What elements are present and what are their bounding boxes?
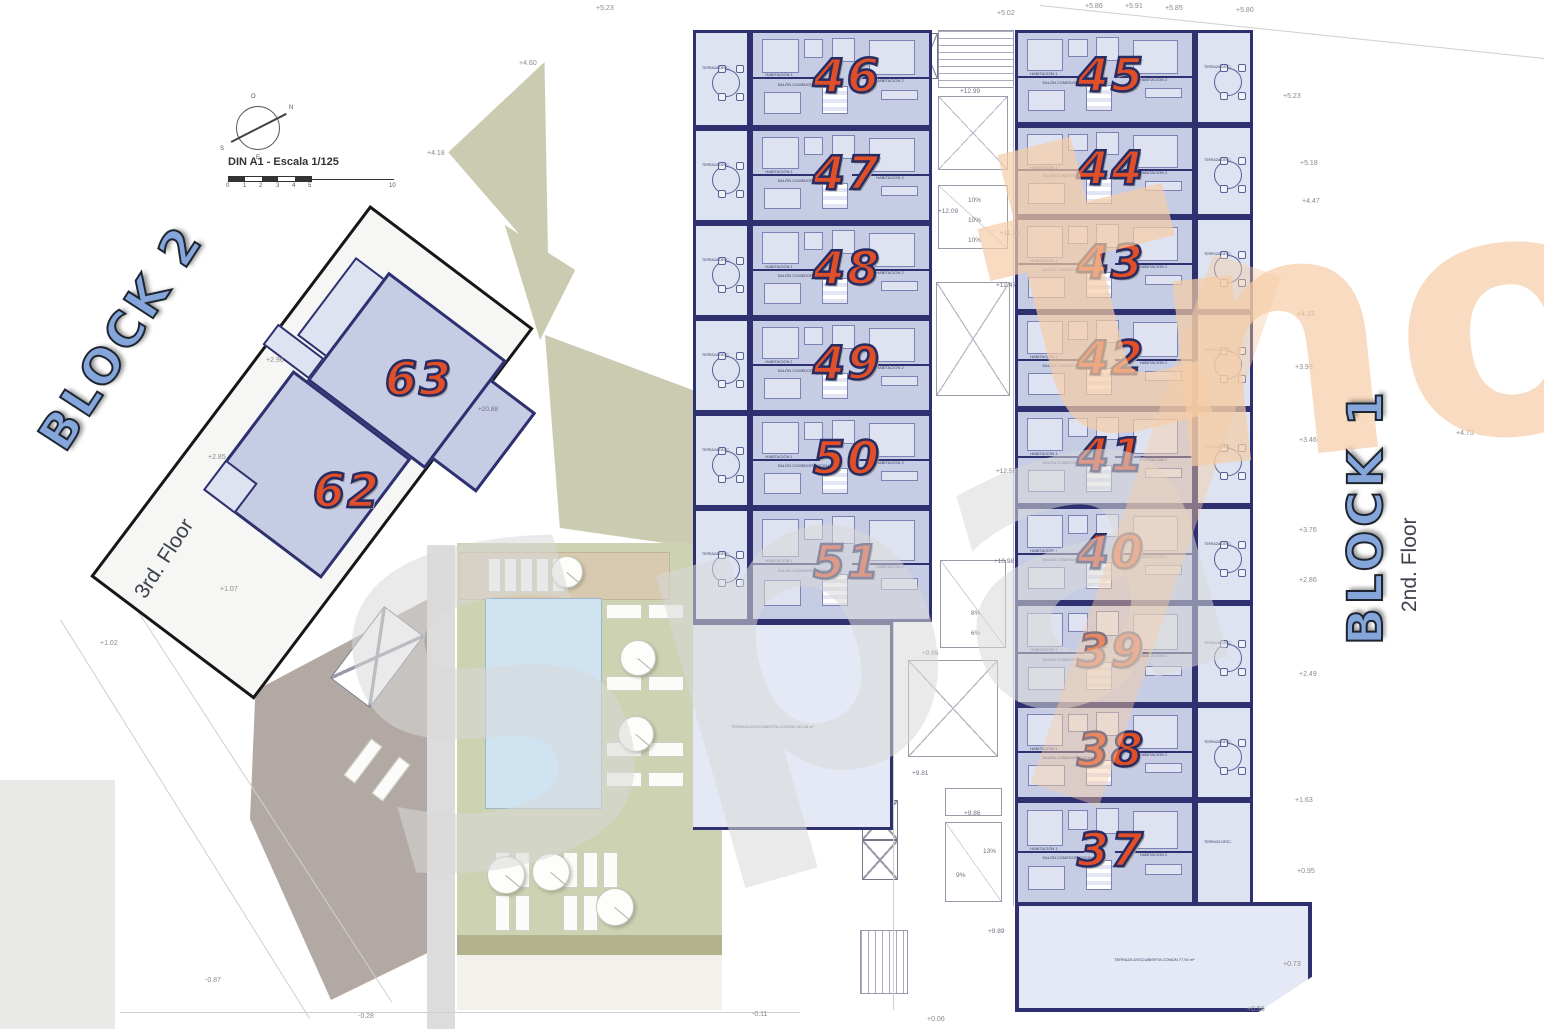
unit-number-44: 44: [1077, 141, 1145, 195]
room-label-bed1: HABITACIÓN 1: [765, 559, 793, 563]
elevation-marker: +2.96: [266, 357, 284, 364]
bed-icon: [762, 232, 799, 264]
common-terrace-left-label: TERRAZA DESCUBIERTA COMÚN 131,06 m²: [731, 725, 814, 729]
elevation-marker: +2.49: [1299, 671, 1317, 678]
room-label-bed1: HABITACIÓN 1: [765, 265, 793, 269]
core-annotation: +9.86: [964, 810, 980, 817]
elevation-marker: +5.23: [596, 5, 614, 12]
terrace-chair-icon: [1238, 472, 1246, 480]
corridor-line-2: [1013, 86, 1014, 906]
elevation-marker: +5.85: [1165, 5, 1183, 12]
core-annotation: 9%: [956, 872, 965, 879]
unit-number-63: 63: [385, 352, 453, 406]
kitchen-icon: [1145, 88, 1182, 98]
unit-42-terrace: TERRAZA DESC.: [1195, 312, 1253, 409]
sun-lounger-icon: [520, 558, 533, 592]
terrace-chair-icon: [736, 447, 744, 455]
terrace-chair-icon: [1220, 375, 1228, 383]
core-annotation: +9.89: [988, 928, 1004, 935]
unit-number-48: 48: [813, 241, 881, 295]
core-lightwell-2: [936, 282, 1010, 396]
terrace-table-icon: [1214, 351, 1242, 379]
terrace-label: TERRAZA DESC.: [702, 448, 730, 452]
core-annotation: 10%: [968, 237, 981, 244]
terrace-label: TERRAZA DESC.: [1204, 641, 1232, 645]
sofa-icon: [1028, 470, 1065, 492]
elevation-marker: +0.95: [1297, 868, 1315, 875]
core-annotation: +9.85: [922, 650, 938, 657]
elevation-marker: +5.91: [1125, 3, 1143, 10]
scale-bar: [228, 176, 312, 182]
terrace-chair-icon: [1238, 157, 1246, 165]
sofa-icon: [764, 92, 801, 114]
sun-lounger-icon: [648, 676, 684, 691]
terrace-chair-icon: [1238, 444, 1246, 452]
sun-lounger-icon: [495, 895, 510, 931]
terrace-chair-icon: [1238, 375, 1246, 383]
sofa-icon: [1028, 90, 1065, 111]
bed-icon: [762, 327, 799, 359]
landscape-wedge-top: [427, 62, 552, 272]
sun-lounger-icon: [603, 852, 618, 888]
room-label-bed1: HABITACIÓN 1: [1030, 72, 1058, 76]
terrace-chair-icon: [718, 475, 726, 483]
core-annotation: 13%: [983, 848, 996, 855]
scale-tick-label: 10: [389, 183, 396, 189]
terrace-chair-icon: [736, 285, 744, 293]
deck-pale-path: [457, 955, 722, 1010]
elevation-marker: +0.73: [1283, 961, 1301, 968]
elevation-marker: +5.18: [1300, 160, 1318, 167]
kitchen-icon: [881, 471, 918, 481]
scale-tick-label: 1: [243, 183, 246, 189]
unit-number-38: 38: [1077, 723, 1145, 777]
terrace-chair-icon: [1238, 185, 1246, 193]
sun-lounger-icon: [648, 742, 684, 757]
bed-icon: [1027, 418, 1064, 451]
elevation-marker: +0.06: [927, 1016, 945, 1023]
core-annotation: 6%: [971, 630, 980, 637]
unit-number-47: 47: [813, 146, 881, 200]
terrace-table-icon: [1214, 545, 1242, 573]
scale-tick-label: 0: [226, 183, 229, 189]
terrace-chair-icon: [718, 93, 726, 101]
umbrella-icon: [620, 640, 656, 676]
terrace-chair-icon: [718, 285, 726, 293]
core-annotation: 8%: [971, 610, 980, 617]
elevation-marker: +3.46: [1299, 437, 1317, 444]
sofa-icon: [764, 580, 801, 606]
terrace-chair-icon: [736, 352, 744, 360]
unit-number-39: 39: [1077, 624, 1145, 678]
terrace-chair-icon: [1220, 185, 1228, 193]
core-lightwell-1: [938, 96, 1008, 170]
unit-number-45: 45: [1077, 48, 1145, 102]
unit-44-terrace: TERRAZA DESC.: [1195, 125, 1253, 217]
terrace-chair-icon: [1238, 569, 1246, 577]
room-label-bed1: HABITACIÓN 1: [765, 455, 793, 459]
bed-icon: [1027, 321, 1064, 354]
terrace-label: TERRAZA DESC.: [1204, 65, 1232, 69]
terrace-table-icon: [712, 166, 740, 194]
sun-lounger-icon: [648, 772, 684, 787]
elevation-marker: +4.18: [427, 150, 445, 157]
room-label-bed1: HABITACIÓN 1: [1030, 747, 1058, 751]
room-label-bed1: HABITACIÓN 1: [1030, 355, 1058, 359]
sun-lounger-icon: [488, 558, 501, 592]
kitchen-icon: [1145, 666, 1182, 677]
bed-icon: [1027, 226, 1064, 258]
room-label-bed1: HABITACIÓN 1: [765, 170, 793, 174]
terrace-chair-icon: [1238, 640, 1246, 648]
umbrella-icon: [487, 856, 525, 894]
unit-48-terrace: TERRAZA DESC.: [693, 223, 750, 318]
sun-lounger-icon: [504, 558, 517, 592]
path-vertical-strip: [427, 545, 455, 1029]
elevation-marker: -0.28: [358, 1013, 374, 1020]
elevation-marker: +2.85: [208, 454, 226, 461]
core-annotation: +11.78: [1000, 230, 1020, 237]
core-annotation: +12.58: [996, 468, 1016, 475]
umbrella-icon: [551, 556, 583, 588]
terrace-chair-icon: [736, 162, 744, 170]
terrace-label: TERRAZA DESC.: [1204, 542, 1232, 546]
core-annotation: 10%: [968, 197, 981, 204]
compass-o: O: [251, 94, 256, 100]
terrace-chair-icon: [736, 579, 744, 587]
sofa-icon: [764, 473, 801, 494]
path-left-band: [0, 780, 115, 1029]
terrace-chair-icon: [718, 579, 726, 587]
kitchen-icon: [1145, 181, 1182, 190]
bed-icon: [1027, 134, 1064, 165]
room-label-bed1: HABITACIÓN 1: [1030, 166, 1058, 170]
unit-45-terrace: TERRAZA DESC.: [1195, 30, 1253, 125]
room-label-bed1: HABITACIÓN 1: [1030, 452, 1058, 456]
scale-tick-label: 4: [292, 183, 295, 189]
terrace-chair-icon: [736, 380, 744, 388]
sun-lounger-icon: [563, 895, 578, 931]
sofa-icon: [764, 378, 801, 399]
kitchen-icon: [881, 281, 918, 291]
sun-lounger-icon: [583, 852, 598, 888]
scale-tick-label: 2: [259, 183, 262, 189]
elevation-marker: +5.23: [1283, 93, 1301, 100]
terrace-label: TERRAZA DESC.: [702, 353, 730, 357]
sofa-icon: [1028, 567, 1065, 589]
kitchen-icon: [881, 186, 918, 196]
unit-number-46: 46: [813, 49, 881, 103]
elevation-marker: -0.87: [205, 977, 221, 984]
sofa-icon: [1028, 866, 1065, 890]
elevation-marker: +5.86: [1085, 3, 1103, 10]
scale-tick-label: 5: [308, 183, 311, 189]
terrace-chair-icon: [718, 380, 726, 388]
terrace-table-icon: [1214, 448, 1242, 476]
bed-icon: [1027, 515, 1064, 548]
unit-number-51: 51: [813, 535, 881, 589]
room-label-bed1: HABITACIÓN 1: [1030, 847, 1058, 851]
terrace-label: TERRAZA DESC.: [702, 163, 730, 167]
kitchen-icon: [1145, 864, 1182, 875]
terrace-chair-icon: [1238, 668, 1246, 676]
terrace-chair-icon: [736, 257, 744, 265]
core-stairs-top: [938, 30, 1014, 88]
terrace-chair-icon: [736, 551, 744, 559]
terrace-chair-icon: [1238, 347, 1246, 355]
elevation-marker: +5.02: [997, 10, 1015, 17]
terrace-chair-icon: [718, 190, 726, 198]
unit-41-terrace: TERRAZA DESC.: [1195, 409, 1253, 506]
terrace-table-icon: [712, 261, 740, 289]
core-annotation: +12.99: [960, 88, 980, 95]
room-label-bed1: HABITACIÓN 1: [1030, 549, 1058, 553]
scale-label: DIN A1 - Escala 1/125: [228, 156, 339, 168]
sofa-icon: [1028, 183, 1065, 204]
sofa-icon: [1028, 765, 1065, 786]
kitchen-icon: [881, 578, 918, 590]
unit-38-terrace: TERRAZA DESC.: [1195, 705, 1253, 800]
block1-title: BLOCK 1: [1338, 388, 1394, 645]
unit-46-terrace: TERRAZA DESC.: [693, 30, 750, 128]
block2-title: BLOCK 2: [28, 215, 215, 461]
core-annotation: +12.09: [938, 208, 958, 215]
terrace-table-icon: [712, 356, 740, 384]
sun-lounger-icon: [606, 604, 642, 619]
terrace-table-icon: [1214, 68, 1242, 96]
sun-lounger-icon: [606, 772, 642, 787]
corridor-line-1: [893, 622, 894, 1010]
unit-number-62: 62: [313, 464, 381, 518]
unit-number-43: 43: [1077, 235, 1145, 289]
unit-39-terrace: TERRAZA DESC.: [1195, 603, 1253, 705]
elevation-marker: +4.60: [519, 60, 537, 67]
common-terrace-left: TERRAZA DESCUBIERTA COMÚN 131,06 m²: [693, 622, 893, 830]
sofa-icon: [764, 188, 801, 209]
unit-number-50: 50: [813, 431, 881, 485]
elevation-marker: +5.80: [1236, 7, 1254, 14]
unit-47-terrace: TERRAZA DESC.: [693, 128, 750, 223]
block1-floor: 2nd. Floor: [1398, 517, 1422, 612]
terrace-chair-icon: [736, 65, 744, 73]
interior-wall: [753, 563, 820, 565]
kitchen-icon: [881, 376, 918, 386]
bed-icon: [762, 519, 799, 558]
elevation-marker: +1.02: [100, 640, 118, 647]
bed-icon: [1027, 714, 1064, 746]
bed-icon: [1027, 810, 1064, 846]
elevation-marker: +4.73: [1456, 430, 1474, 437]
unit-40-terrace: TERRAZA DESC.: [1195, 506, 1253, 603]
terrace-label: TERRAZA DESC.: [702, 66, 730, 70]
terrace-table-icon: [1214, 743, 1242, 771]
terrace-label: TERRAZA DESC.: [702, 552, 730, 556]
bed-icon: [1027, 39, 1064, 71]
unit-number-37: 37: [1077, 823, 1145, 877]
terrace-chair-icon: [1220, 668, 1228, 676]
terrace-chair-icon: [1238, 64, 1246, 72]
kitchen-icon: [1145, 275, 1182, 285]
elevation-marker: +0.56: [1247, 1006, 1265, 1013]
sofa-icon: [1028, 667, 1065, 690]
common-terrace-bottom-label: TERRAZA DESCUBIERTA COMÚN 77,94 m²: [1114, 958, 1195, 962]
landscape-patch-mid: [545, 335, 693, 547]
terrace-table-icon: [712, 451, 740, 479]
elevation-marker: +1.07: [220, 586, 238, 593]
core-annotation: +12.47: [996, 282, 1016, 289]
unit-number-49: 49: [813, 336, 881, 390]
core-annotation: 10%: [968, 217, 981, 224]
terrace-chair-icon: [1238, 541, 1246, 549]
sun-lounger-icon: [515, 895, 530, 931]
scale-tick-label: 3: [276, 183, 279, 189]
terrace-chair-icon: [736, 93, 744, 101]
sun-lounger-icon: [536, 558, 549, 592]
terrace-chair-icon: [1220, 279, 1228, 287]
terrace-chair-icon: [1238, 739, 1246, 747]
core-annotation: +20.88: [478, 406, 498, 413]
sun-lounger-icon: [606, 676, 642, 691]
umbrella-icon: [596, 888, 634, 926]
unit-number-40: 40: [1077, 525, 1145, 579]
bed-icon: [762, 39, 799, 72]
terrace-chair-icon: [1220, 472, 1228, 480]
terrace-chair-icon: [736, 190, 744, 198]
kitchen-icon: [1145, 565, 1182, 575]
unit-43-terrace: TERRAZA DESC.: [1195, 217, 1253, 312]
umbrella-icon: [532, 853, 570, 891]
terrace-chair-icon: [1238, 92, 1246, 100]
terrace-chair-icon: [1220, 92, 1228, 100]
terrace-chair-icon: [1238, 279, 1246, 287]
kitchen-icon: [1145, 468, 1182, 478]
elevation-marker: +4.23: [1297, 311, 1315, 318]
unit-37-terrace: TERRAZA DESC.: [1195, 800, 1253, 905]
sofa-icon: [1028, 277, 1065, 298]
umbrella-icon: [618, 716, 654, 752]
interior-wall: [1018, 652, 1084, 654]
elevation-marker: +3.93: [1295, 364, 1313, 371]
terrace-table-icon: [1214, 255, 1242, 283]
terrace-label: TERRAZA DESC.: [1204, 158, 1232, 162]
deck-olive-band: [457, 935, 722, 955]
elevation-marker: +1.63: [1295, 797, 1313, 804]
compass-n: N: [289, 105, 293, 111]
sofa-icon: [1028, 373, 1065, 395]
terrace-label: TERRAZA DESC.: [1204, 445, 1232, 449]
room-label-bed1: HABITACIÓN 1: [1030, 259, 1058, 263]
bed-icon: [762, 137, 799, 169]
swimming-pool: [485, 598, 602, 809]
floor-plan-canvas: O N S E DIN A1 - Escala 1/125 01234510 6…: [0, 0, 1544, 1029]
elevation-marker: +3.76: [1299, 527, 1317, 534]
elevation-marker: +4.47: [1302, 198, 1320, 205]
sun-lounger-icon: [648, 604, 684, 619]
core-ramp-3: [945, 822, 1002, 902]
bed-icon: [1027, 613, 1064, 648]
terrace-chair-icon: [736, 475, 744, 483]
terrace-chair-icon: [1220, 767, 1228, 775]
sun-lounger-icon: [583, 895, 598, 931]
compass-s: S: [220, 146, 224, 152]
unit-50-terrace: TERRAZA DESC.: [693, 413, 750, 508]
terrace-label: TERRAZA DESC.: [1204, 840, 1232, 844]
bed-icon: [762, 422, 799, 454]
elevation-marker: +2.86: [1299, 577, 1317, 584]
terrace-table-icon: [712, 69, 740, 97]
terrace-chair-icon: [1220, 569, 1228, 577]
room-label-bed1: HABITACIÓN 1: [1030, 648, 1058, 652]
core-lightwell-3: [908, 660, 998, 757]
kitchen-icon: [881, 90, 918, 100]
terrace-chair-icon: [1238, 767, 1246, 775]
sofa-icon: [764, 283, 801, 304]
unit-number-42: 42: [1077, 331, 1145, 385]
terrace-label: TERRAZA DESC.: [1204, 740, 1232, 744]
core-annotation: +10.98: [994, 558, 1014, 565]
site-line-bottom: [120, 1012, 800, 1013]
terrace-label: TERRAZA DESC.: [1204, 252, 1232, 256]
elevation-marker: -0.11: [752, 1011, 767, 1018]
terrace-table-icon: [712, 555, 740, 583]
terrace-chair-icon: [1238, 251, 1246, 259]
room-label-bed1: HABITACIÓN 1: [765, 360, 793, 364]
unit-number-41: 41: [1077, 428, 1145, 482]
exterior-stair-bottom: [860, 930, 908, 994]
unit-49-terrace: TERRAZA DESC.: [693, 318, 750, 413]
room-label-bed1: HABITACIÓN 1: [765, 73, 793, 77]
kitchen-icon: [1145, 763, 1182, 773]
terrace-label: TERRAZA DESC.: [1204, 348, 1232, 352]
interior-wall: [1018, 851, 1084, 853]
core-annotation: +9.81: [912, 770, 928, 777]
scale-bar-extension: [310, 179, 394, 180]
terrace-label: TERRAZA DESC.: [702, 258, 730, 262]
kitchen-icon: [1145, 371, 1182, 381]
unit-51-terrace: TERRAZA DESC.: [693, 508, 750, 622]
common-terrace-bottom: TERRAZA DESCUBIERTA COMÚN 77,94 m²: [1015, 902, 1312, 1012]
